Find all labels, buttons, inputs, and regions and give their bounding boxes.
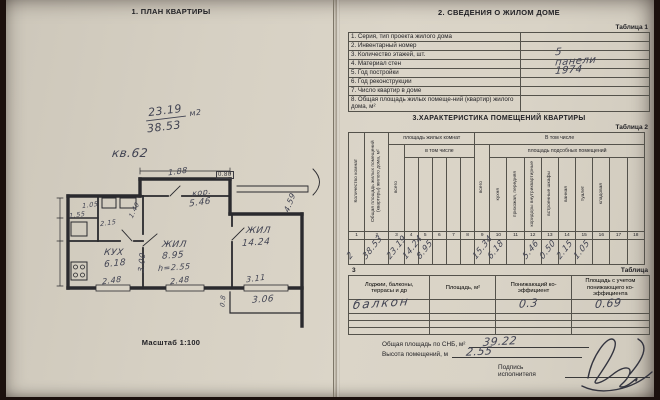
room-height-label: Высота помещений, м	[382, 351, 448, 358]
aux-room-subcolumn: ванная	[558, 158, 575, 232]
table3-handwritten-value: 0.69	[594, 296, 622, 311]
living-room-subcolumn	[432, 158, 446, 232]
table3-cell	[430, 321, 496, 328]
table3-cell: 0.3	[496, 300, 571, 314]
table1-label: 4. Материал стен	[349, 60, 521, 69]
living-room-subcolumn	[418, 158, 432, 232]
table3-row: балкон0.30.69	[349, 300, 650, 314]
plan-dimension-label: КУХ	[103, 248, 124, 258]
table3-row	[349, 314, 650, 321]
dwelling-info-table: 1. Серия, тип проекта жилого дома2. Инве…	[348, 32, 650, 112]
table3-caption: 3 Таблица	[352, 267, 648, 274]
including-group-header: В том числе	[475, 133, 645, 145]
column-number: 8	[461, 232, 475, 240]
table2-value-cell	[610, 240, 627, 265]
table2-handwritten-value: 6.18	[487, 238, 507, 262]
plan-dimension-label: 3.06	[252, 294, 275, 306]
scale-label: Масштаб 1:100	[6, 338, 336, 347]
column-number: 16	[593, 232, 610, 240]
floor-plan: 1.880.80кор.5.461.052.151.551.40КУХ6.18Ж…	[40, 156, 338, 362]
area-fraction-note: 23.19 38.53 м2	[144, 102, 187, 136]
table1-value-cell	[520, 33, 649, 42]
table1-row: 2. Инвентарный номер	[349, 42, 650, 51]
table1-label: 3. Количество этажей, шт.	[349, 51, 521, 60]
column-number: 18	[627, 232, 644, 240]
table3-caption-word: Таблица	[621, 267, 648, 274]
table3-cell	[571, 321, 649, 328]
column-number: 1	[349, 232, 365, 240]
floor-plan-drawing	[40, 156, 338, 362]
table1-row: 8. Общая площадь жилых помеще-ний (кварт…	[349, 96, 650, 112]
aux-room-subcolumn-label: ванная	[564, 186, 570, 202]
table2-handwritten-value: 0.50	[538, 238, 558, 262]
table1-row: 1. Серия, тип проекта жилого дома	[349, 33, 650, 42]
table2-handwritten-value: 2.15	[555, 238, 575, 262]
table1-handwritten-value: 1974	[554, 65, 583, 78]
plan-dimension-label: ЖИЛ	[245, 226, 271, 236]
aux-total-header: всего	[475, 145, 490, 232]
page-fold	[333, 0, 340, 397]
table2-handwritten-value: 2	[345, 250, 355, 262]
aux-room-subcolumn: коридоры внутриквартирные	[524, 158, 541, 232]
table1-row: 6. Год реконструкции	[349, 78, 650, 87]
column-number: 6	[432, 232, 446, 240]
table3-cell	[349, 314, 430, 321]
table3-cell	[496, 321, 571, 328]
table3-cell	[430, 300, 496, 314]
column-number: 17	[610, 232, 627, 240]
living-room-subcolumn	[404, 158, 418, 232]
table1-value-cell: 1974	[520, 69, 649, 78]
table1-value-cell	[520, 87, 649, 96]
table2-handwritten-value: 1.05	[572, 238, 592, 262]
aux-room-subcolumn-label: прихожая, передняя	[513, 171, 519, 217]
plan-section-title: 1. ПЛАН КВАРТИРЫ	[6, 7, 336, 16]
table1-value-cell	[520, 96, 649, 112]
table2-handwritten-value: 5.46	[521, 238, 541, 262]
table1-row: 5. Год постройки1974	[349, 69, 650, 78]
characteristics-title: 3.ХАРАКТЕРИСТИКА ПОМЕЩЕНИЙ КВАРТИРЫ	[348, 115, 650, 122]
table2-value-cell: 6.18	[490, 240, 507, 265]
plan-dimension-label: ЖИЛ	[161, 240, 187, 250]
aux-rooms-group-header: площадь подсобных помещений	[490, 145, 645, 158]
table1-value-cell: панели	[520, 60, 649, 69]
table1-row: 7. Число квартир в доме	[349, 87, 650, 96]
aux-room-subcolumn-label: туалет	[581, 186, 587, 201]
aux-room-subcolumn	[627, 158, 644, 232]
table2-value-cell	[593, 240, 610, 265]
aux-room-subcolumn-label: коридоры внутриквартирные	[530, 161, 536, 227]
table3-cell	[349, 321, 430, 328]
table2-value-cell	[432, 240, 446, 265]
table3-header: Площадь, м²	[430, 276, 496, 300]
aux-room-subcolumn: туалет	[576, 158, 593, 232]
aux-room-subcolumn: кладовая	[593, 158, 610, 232]
aux-room-subcolumn: прихожая, передняя	[507, 158, 524, 232]
table1-label: 6. Год реконструкции	[349, 78, 521, 87]
table3-cell	[430, 314, 496, 321]
room-height-underline: 2.55	[452, 350, 582, 358]
plan-dimension-label: 8.95	[162, 250, 185, 262]
table1-value-cell	[520, 42, 649, 51]
table1-label: 1. Серия, тип проекта жилого дома	[349, 33, 521, 42]
table1-row: 3. Количество этажей, шт.5	[349, 51, 650, 60]
table1-label: 7. Число квартир в доме	[349, 87, 521, 96]
table3-cell	[496, 314, 571, 321]
table3-handwritten-value: балкон	[352, 294, 411, 312]
aux-room-subcolumn-label: кухня	[496, 188, 502, 200]
living-including-header: в том числе	[404, 145, 475, 158]
table1-caption: Таблица 1	[348, 24, 648, 31]
signature-label: Подпись исполнителя	[498, 364, 562, 378]
table1-row: 4. Материал стенпанели	[349, 60, 650, 69]
aux-room-subcolumn: встроенные шкафы	[541, 158, 558, 232]
living-room-subcolumn	[461, 158, 475, 232]
table3-cell	[571, 314, 649, 321]
living-rooms-group-header: площадь жилых комнат	[389, 133, 475, 145]
table3-handwritten-value: 0.3	[518, 297, 538, 311]
aux-room-subcolumn: кухня	[490, 158, 507, 232]
col-rooms-count-header: Количество комнат	[349, 133, 365, 232]
col-total-area-header: Общая площадь жилых помещений (квартиры)…	[365, 133, 389, 232]
plan-dimension-label: 0.8	[218, 294, 227, 308]
plan-dimension-label: 14.24	[242, 237, 271, 249]
table2-value-cell	[627, 240, 644, 265]
living-room-subcolumn	[446, 158, 460, 232]
column-number: 7	[446, 232, 460, 240]
dwelling-info-title: 2. СВЕДЕНИЯ О ЖИЛОМ ДОМЕ	[348, 8, 650, 17]
balconies-table: Лоджии, балконы, террасы и дрПлощадь, м²…	[348, 275, 650, 335]
table3-cell: 0.69	[571, 300, 649, 314]
scanned-document-sheet: 1. ПЛАН КВАРТИРЫ 23.19 38.53 м2 кв.62	[6, 0, 654, 397]
table3-caption-number: 3	[352, 267, 356, 274]
table3-cell	[430, 328, 496, 335]
table2-caption: Таблица 2	[348, 124, 648, 131]
executor-signature	[578, 330, 656, 394]
table2-value-cell: 1.05	[576, 240, 593, 265]
room-height-value: 2.55	[465, 345, 493, 359]
table1-label: 2. Инвентарный номер	[349, 42, 521, 51]
aux-room-subcolumn-label: встроенные шкафы	[547, 171, 553, 216]
table3-row	[349, 321, 650, 328]
plan-dimension-label: 3.00	[137, 252, 148, 274]
table1-label: 5. Год постройки	[349, 69, 521, 78]
living-total-header: всего	[389, 145, 404, 232]
table2-value-cell	[446, 240, 460, 265]
plan-dimension-label: 0.80	[216, 171, 234, 179]
table1-label: 8. Общая площадь жилых помеще-ний (кварт…	[349, 96, 521, 112]
table3-cell: балкон	[349, 300, 430, 314]
area-unit-note: м2	[189, 108, 202, 118]
aux-room-subcolumn	[610, 158, 627, 232]
table2-value-cell: 8.95	[418, 240, 432, 265]
aux-room-subcolumn-label: кладовая	[599, 183, 605, 204]
column-number: 11	[507, 232, 524, 240]
table1-value-cell	[520, 78, 649, 87]
rooms-characteristics-table: Количество комнат Общая площадь жилых по…	[348, 132, 645, 265]
snb-area-label: Общая площадь по СНБ, м²	[382, 341, 465, 348]
table3-cell	[349, 328, 430, 335]
